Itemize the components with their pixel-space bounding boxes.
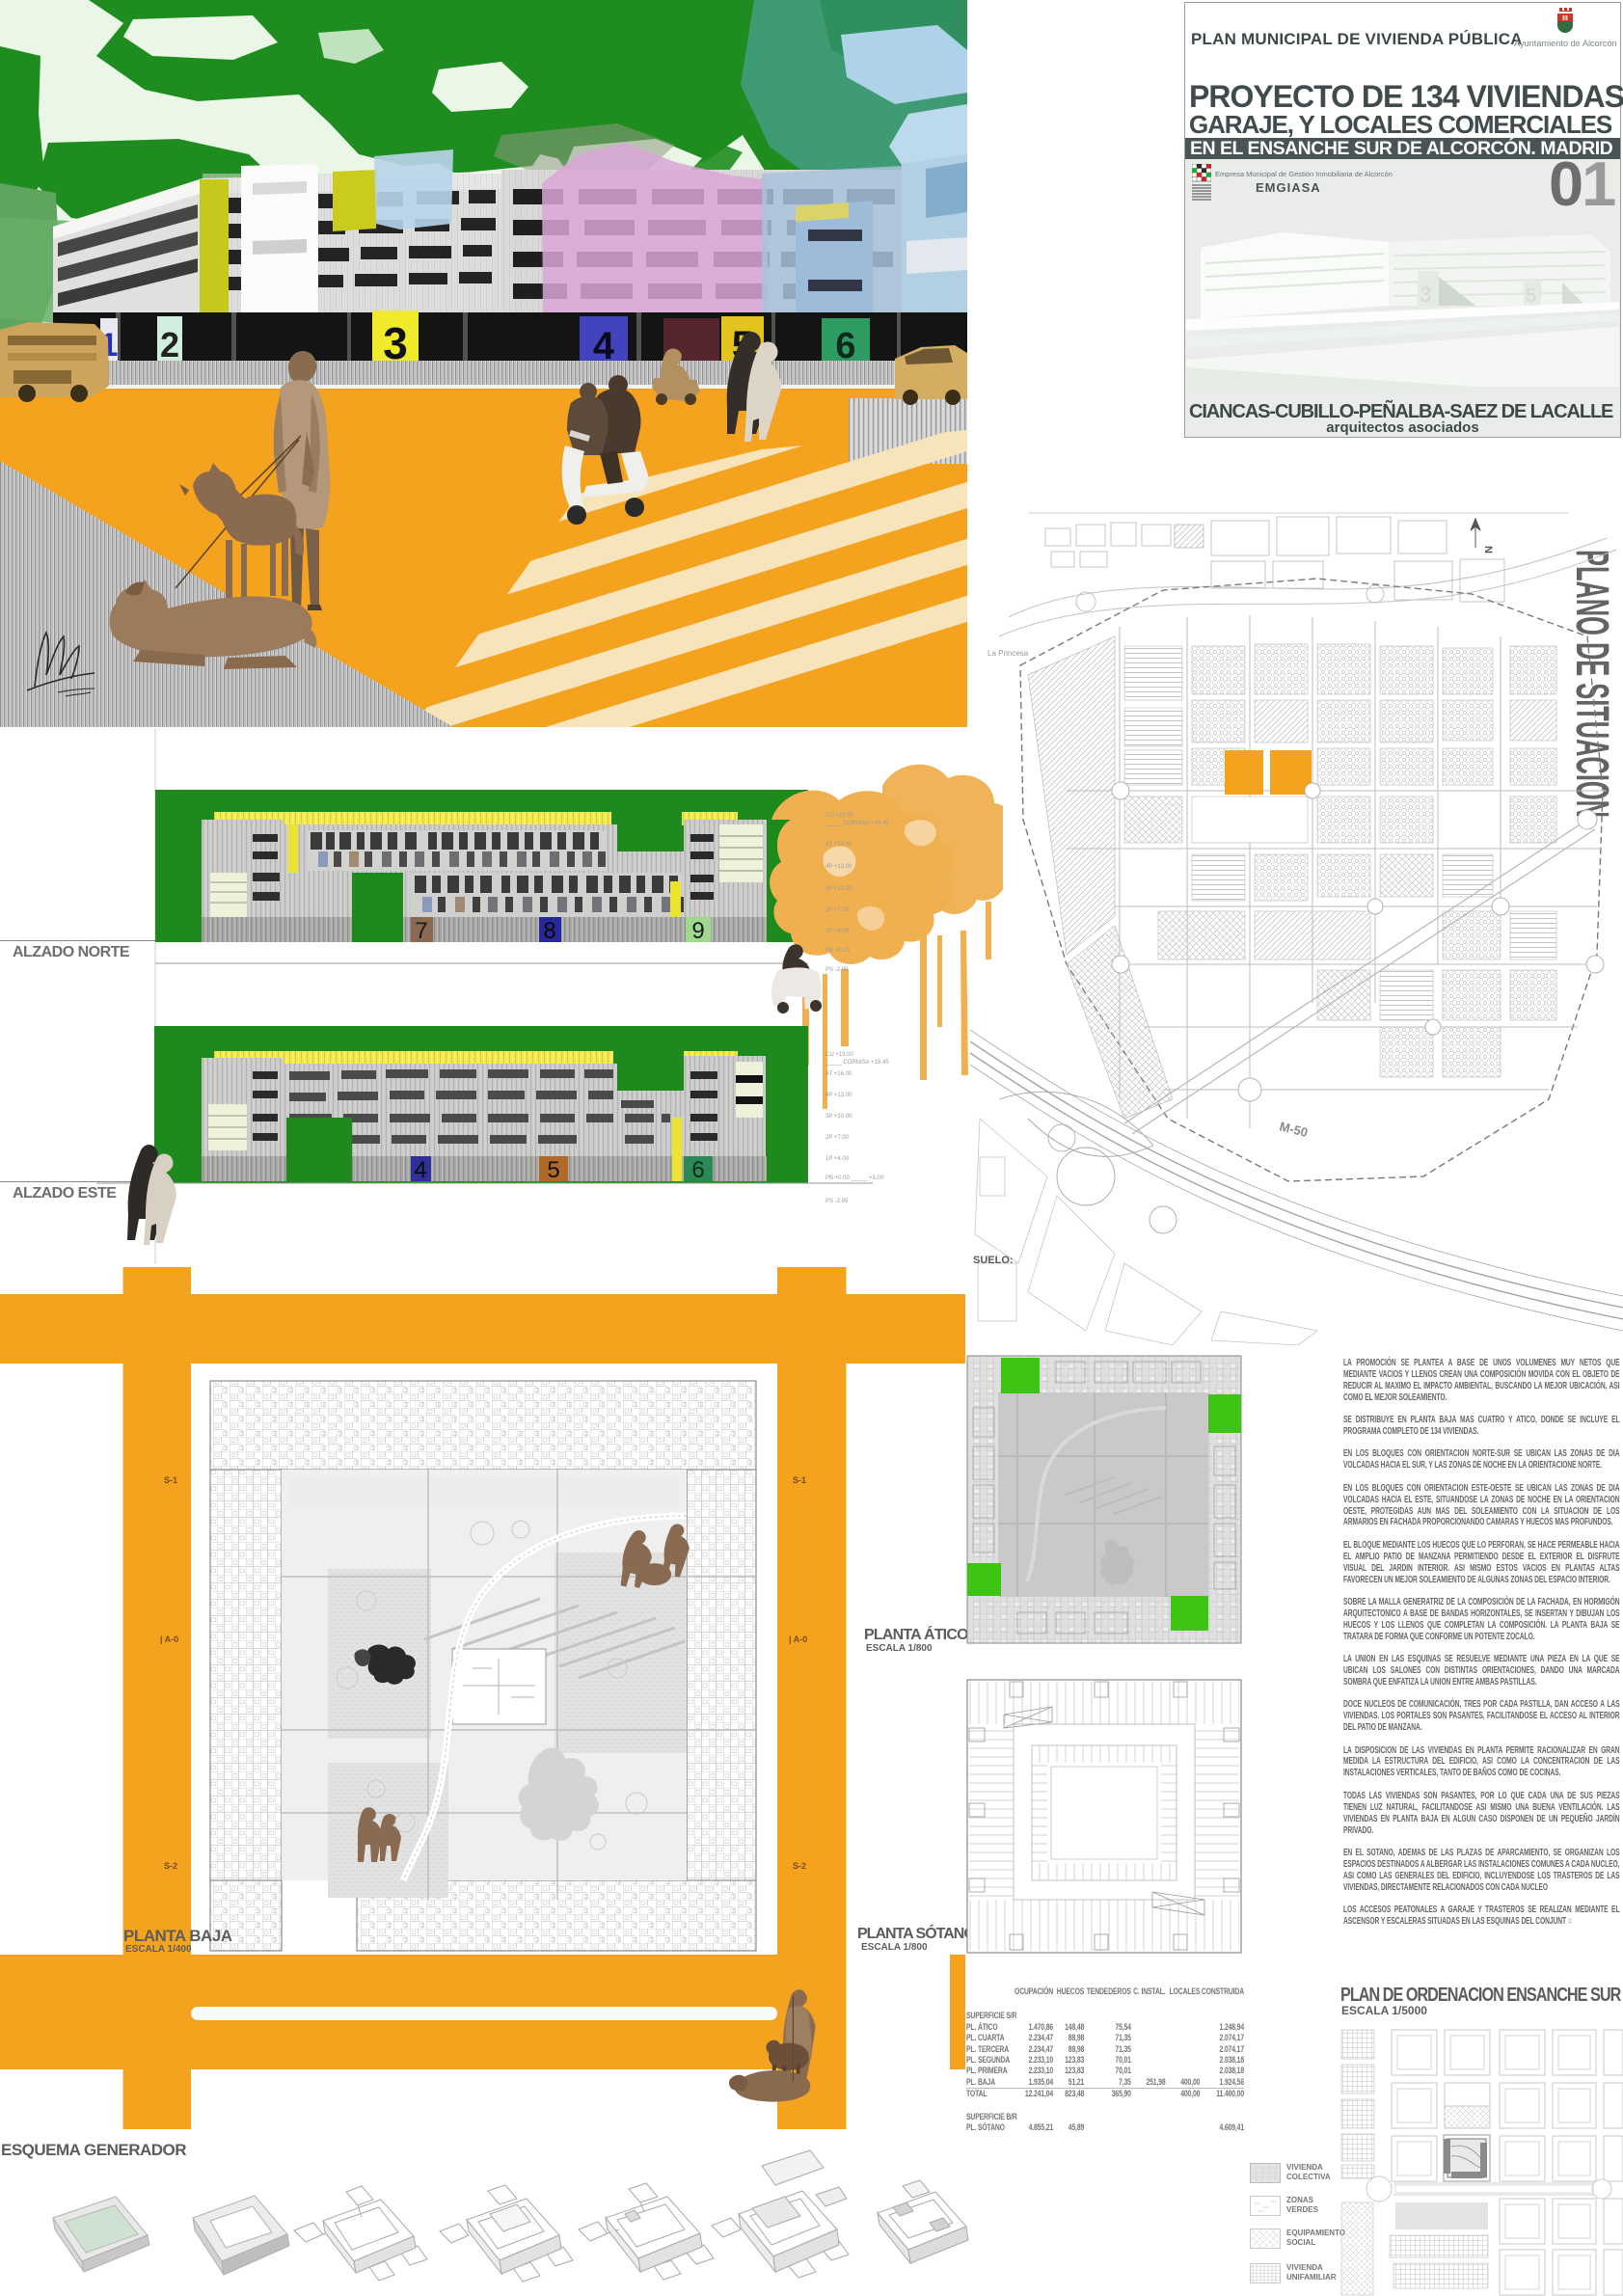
svg-text:S-2: S-2 (793, 1861, 806, 1871)
svg-text:ALZADO ESTE: ALZADO ESTE (13, 1185, 117, 1202)
svg-text:ESQUEMA GENERADOR: ESQUEMA GENERADOR (1, 2141, 186, 2159)
svg-text:3P +10.00: 3P +10.00 (825, 1114, 852, 1120)
svg-text:9: 9 (691, 918, 704, 944)
svg-text:N: N (1482, 546, 1494, 554)
svg-text:S-2: S-2 (164, 1861, 177, 1871)
svg-text:M-50: M-50 (1278, 1119, 1309, 1140)
svg-text:3P +10.00: 3P +10.00 (825, 886, 852, 892)
svg-text:PLANTA SÓTANO: PLANTA SÓTANO (857, 1924, 975, 1942)
svg-text:PB +0.00: PB +0.00 (825, 948, 851, 954)
svg-text:PLANTA ÁTICO: PLANTA ÁTICO (864, 1625, 968, 1643)
svg-text:2P +7.00: 2P +7.00 (825, 907, 850, 913)
svg-text:ALZADO NORTE: ALZADO NORTE (13, 944, 130, 960)
svg-text:5: 5 (1526, 285, 1536, 307)
svg-text:S-1: S-1 (793, 1475, 806, 1485)
svg-text:CU +19.00: CU +19.00 (825, 813, 854, 819)
svg-text:PB +0.00 _____ +3.00: PB +0.00 _____ +3.00 (825, 1175, 884, 1181)
svg-text:1P +4.00: 1P +4.00 (825, 929, 850, 934)
svg-text:PLANTA BAJA: PLANTA BAJA (123, 1927, 232, 1945)
svg-text:PS -2.95: PS -2.95 (825, 967, 849, 973)
svg-text:ESCALA 1/800: ESCALA 1/800 (861, 1942, 928, 1953)
svg-text:2: 2 (160, 325, 179, 365)
svg-text:6: 6 (835, 326, 855, 366)
svg-text:3: 3 (1420, 283, 1431, 307)
svg-text:4P +13.00: 4P +13.00 (825, 864, 852, 870)
svg-text:CU +19.00: CU +19.00 (825, 1052, 854, 1058)
svg-text:_____ CORNISA +18.45: _____ CORNISA +18.45 (825, 821, 889, 826)
svg-text:S-1: S-1 (164, 1475, 177, 1485)
svg-text:| A-0: | A-0 (160, 1634, 178, 1644)
svg-text:4: 4 (414, 1157, 426, 1183)
svg-text:5: 5 (547, 1157, 559, 1183)
svg-text:AT +16.00: AT +16.00 (825, 842, 852, 848)
svg-text:4P +13.00: 4P +13.00 (825, 1093, 852, 1098)
svg-text:AT +16.00: AT +16.00 (825, 1071, 852, 1077)
svg-text:1P +4.00: 1P +4.00 (825, 1156, 850, 1162)
svg-text:| A-0: | A-0 (789, 1634, 807, 1644)
svg-text:ESCALA 1/400: ESCALA 1/400 (125, 1944, 192, 1955)
svg-text:2P +7.00: 2P +7.00 (825, 1135, 850, 1141)
svg-text:6: 6 (691, 1157, 704, 1183)
svg-text:8: 8 (543, 918, 555, 944)
svg-text:ESCALA 1/800: ESCALA 1/800 (866, 1643, 933, 1654)
svg-text:7: 7 (415, 918, 427, 944)
svg-text:PS -2.95: PS -2.95 (825, 1199, 849, 1204)
svg-text:_____ CORNISA +18.45: _____ CORNISA +18.45 (825, 1060, 889, 1066)
svg-text:La Princesa: La Princesa (987, 649, 1029, 658)
